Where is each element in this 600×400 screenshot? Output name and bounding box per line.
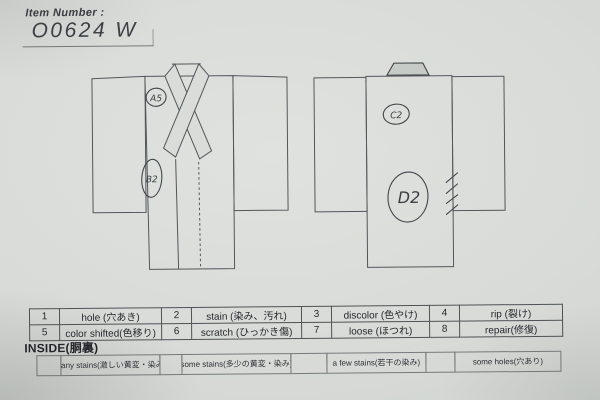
- annotation-code-c2: C2: [390, 111, 402, 121]
- checkbox-cell: [425, 352, 455, 373]
- kimono-back-diagram: C2 D2: [314, 62, 506, 268]
- inside-section-label: INSIDE(胴裏): [24, 339, 98, 357]
- damage-codes-table: 1 hole (穴あき) 2 stain (染み、汚れ) 3 discolor …: [29, 304, 563, 342]
- code-label: rip (裂け): [459, 304, 562, 321]
- code-label: discolor (色やけ): [331, 305, 429, 322]
- inside-option-label: many stains(激しい黄変・染み): [60, 354, 160, 376]
- inside-option-label: some stains(多少の黄変・染み): [181, 353, 291, 375]
- center-front-dashed-line: [199, 162, 201, 268]
- inside-option-label: a few stains(若干の染み): [326, 352, 426, 374]
- code-number: 7: [302, 322, 332, 338]
- code-label: stain (染み、汚れ): [191, 306, 301, 323]
- checkbox-cell: [290, 353, 327, 374]
- checkbox-cell: [159, 354, 182, 375]
- annotation-code-d2: D2: [398, 188, 421, 207]
- inside-option-label: some holes(穴あり): [454, 351, 561, 373]
- back-right-sleeve: [452, 76, 505, 210]
- code-number: 6: [162, 323, 192, 339]
- code-label: repair(修復): [460, 320, 563, 337]
- kimono-front-diagram: A5 B2: [92, 63, 289, 270]
- checkbox-cell: [36, 355, 61, 376]
- code-number: 1: [29, 309, 59, 325]
- code-number: 2: [161, 307, 191, 323]
- front-right-sleeve: [233, 75, 288, 210]
- code-number: 4: [429, 305, 459, 321]
- code-number: 8: [430, 321, 460, 337]
- annotation-code-a5: A5: [149, 94, 162, 104]
- front-overlap-edge-line: [176, 159, 179, 269]
- photographed-condition-form: Item Number : O0624 W A5 B2: [0, 0, 600, 400]
- annotation-code-b2: B2: [146, 175, 158, 185]
- back-left-sleeve: [314, 77, 367, 211]
- code-label: loose (ほつれ): [332, 321, 430, 338]
- back-body-panel: [366, 76, 454, 268]
- back-collar-tab: [387, 63, 429, 75]
- front-left-sleeve: [92, 76, 146, 212]
- code-label: hole (穴あき): [59, 308, 161, 325]
- code-number: 3: [301, 306, 331, 322]
- hatch-marks-icon: [446, 173, 458, 215]
- code-label: scratch (ひっかき傷): [192, 322, 302, 339]
- paper-sheet: Item Number : O0624 W A5 B2: [0, 0, 600, 400]
